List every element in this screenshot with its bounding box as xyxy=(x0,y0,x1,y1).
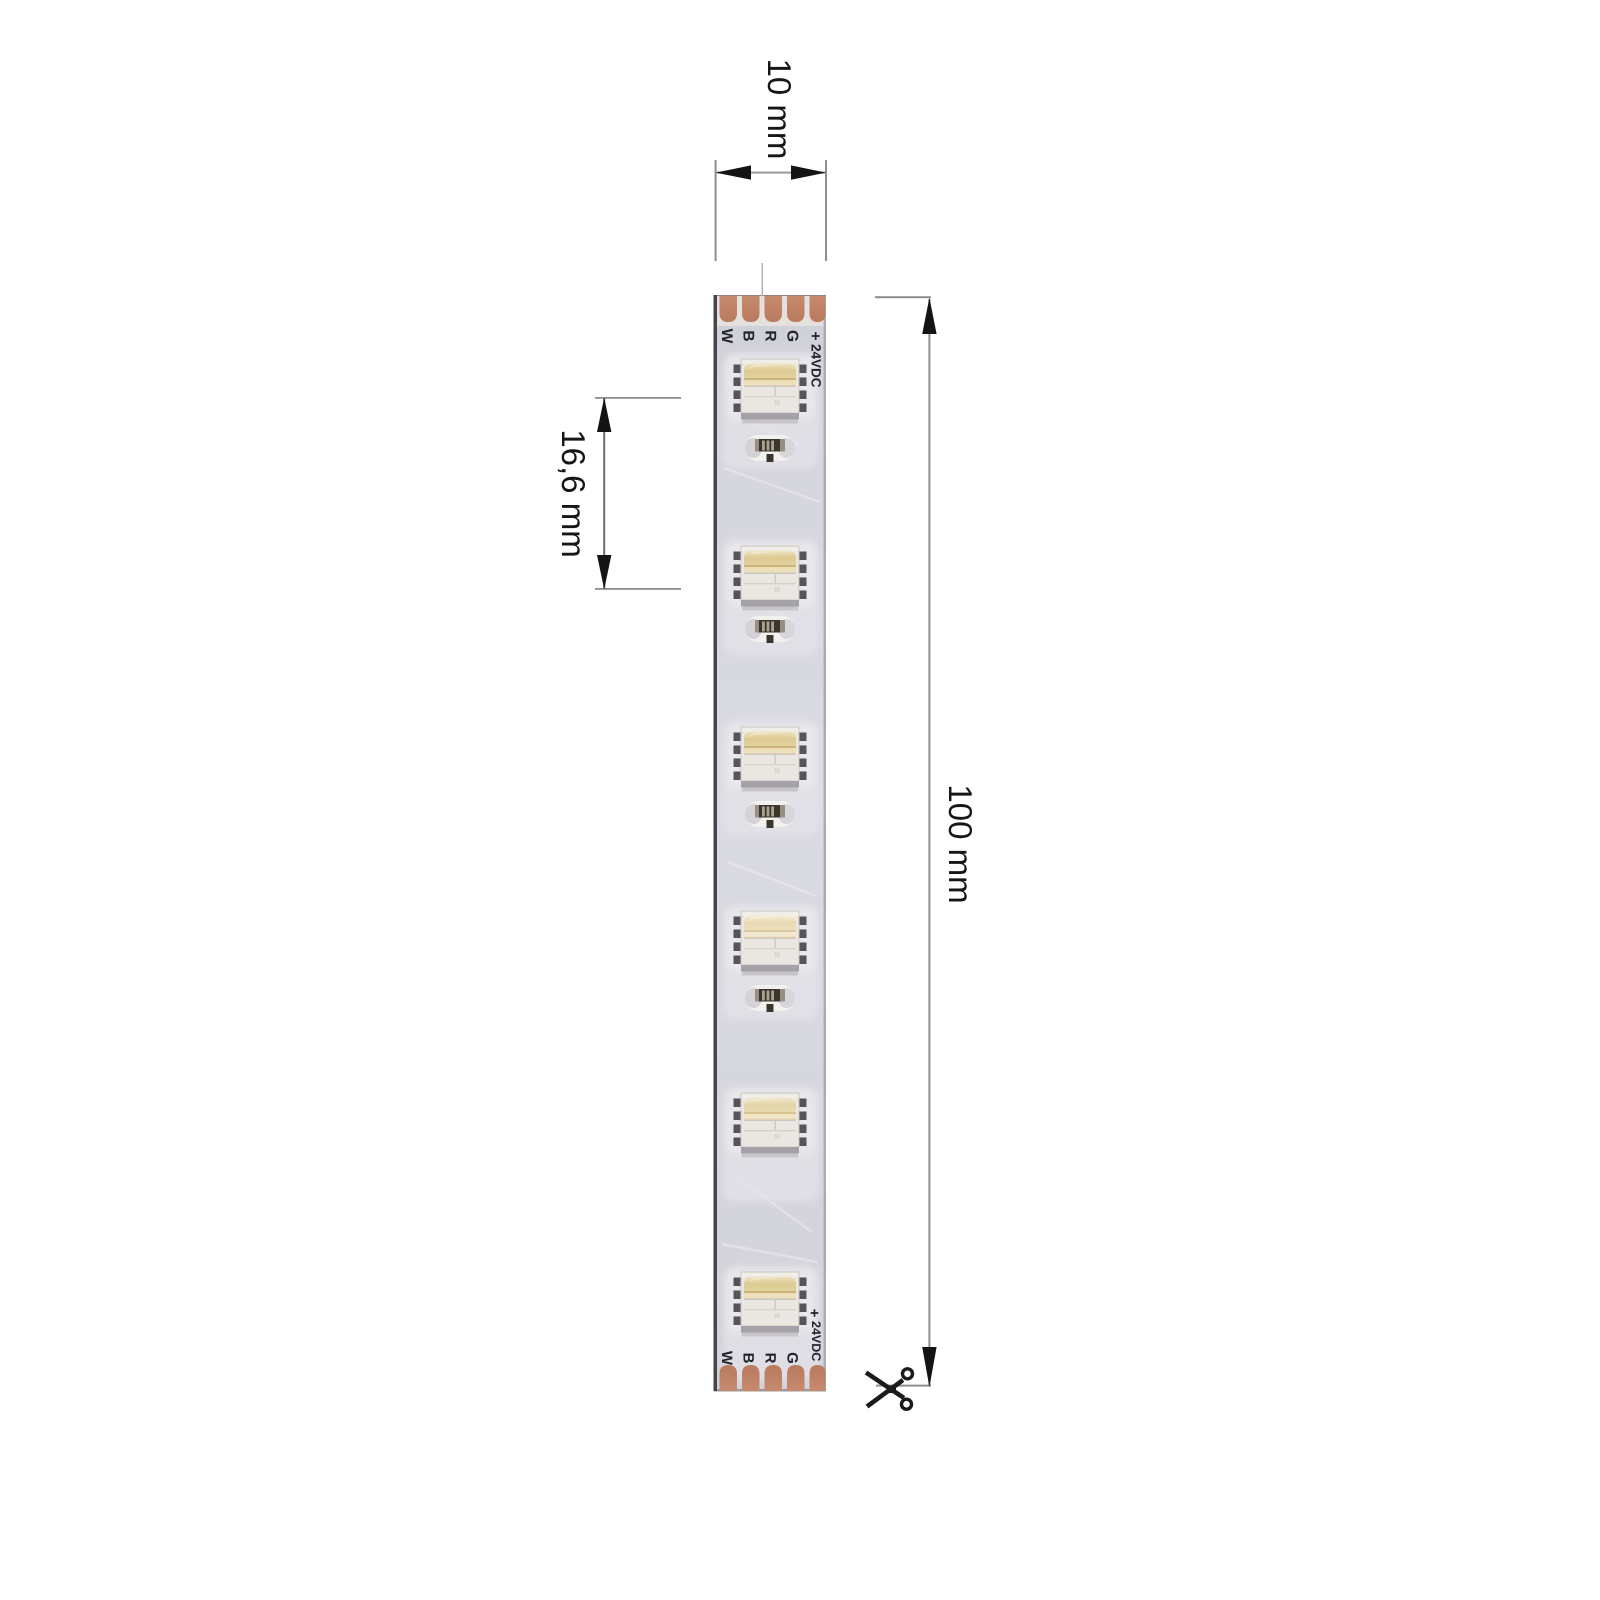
svg-text:B: B xyxy=(740,1353,757,1364)
svg-text:W: W xyxy=(718,329,735,344)
svg-text:B: B xyxy=(740,330,757,341)
svg-text:R: R xyxy=(762,1353,779,1364)
svg-text:+: + xyxy=(806,1309,823,1318)
svg-text:16,6 mm: 16,6 mm xyxy=(555,429,592,557)
svg-text:24VDC: 24VDC xyxy=(809,344,824,388)
svg-text:W: W xyxy=(718,1351,735,1366)
svg-text:10 mm: 10 mm xyxy=(761,59,798,160)
svg-text:G: G xyxy=(784,330,801,342)
svg-text:R: R xyxy=(762,330,779,341)
svg-text:100 mm: 100 mm xyxy=(942,784,979,903)
svg-text:+: + xyxy=(807,331,824,340)
svg-text:G: G xyxy=(784,1352,801,1364)
svg-text:24VDC: 24VDC xyxy=(809,1321,823,1361)
